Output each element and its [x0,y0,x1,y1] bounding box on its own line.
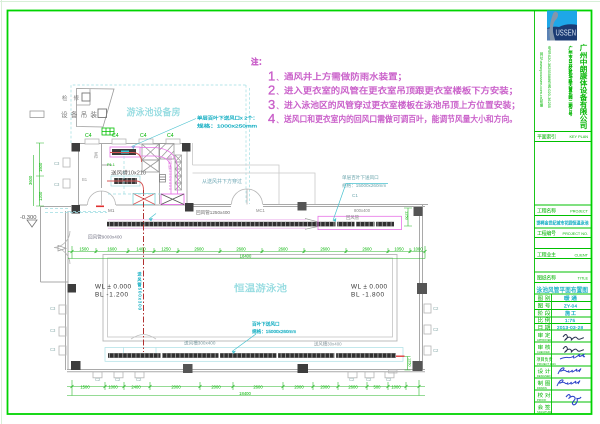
svg-text:注：: 注： [251,57,266,67]
svg-text:进入更衣室的风管在更衣室吊顶跟更衣室楼板下方安装；: 进入更衣室的风管在更衣室吊顶跟更衣室楼板下方安装； [284,86,518,96]
svg-text:C3: C3 [54,182,60,187]
svg-text:2600: 2600 [253,385,263,390]
svg-text:2400: 2400 [131,385,141,390]
svg-text:APPROVED: APPROVED [537,338,552,342]
svg-text:进入泳池区的风管穿过更衣室楼板在泳池吊顶上方位置安装；: 进入泳池区的风管穿过更衣室楼板在泳池吊顶上方位置安装； [284,100,520,110]
svg-text:2000: 2000 [320,385,330,390]
svg-text:广州市白云区机场路天誉花园二期12号: 广州市白云区机场路天誉花园二期12号 [569,44,574,116]
svg-text:PROJECT NO.: PROJECT NO. [563,232,588,236]
svg-text:C4: C4 [167,133,174,139]
svg-text:1400: 1400 [136,247,146,252]
svg-text:PROJECT MAN.: PROJECT MAN. [537,362,557,366]
svg-text:2000: 2000 [211,385,221,390]
svg-text:2600: 2600 [320,247,330,252]
svg-text:PROOF: PROOF [537,398,547,402]
svg-text:M1: M1 [108,208,115,213]
svg-text:广州中朗康体设备有限公司: 广州中朗康体设备有限公司 [579,43,588,129]
svg-text:18400: 18400 [239,391,251,396]
svg-text:、: 、 [277,91,283,97]
svg-text:2600: 2600 [236,247,246,252]
svg-text:规格：1000x250mm: 规格：1000x250mm [197,123,257,130]
svg-text:回风管1250x400: 回风管1250x400 [196,209,230,216]
svg-text:工程名称: 工程名称 [537,208,556,215]
svg-text:USSEN: USSEN [556,29,577,38]
svg-text:1600: 1600 [107,247,117,252]
svg-text:平面索引: 平面索引 [537,134,556,141]
svg-text:图 号: 图 号 [538,304,551,310]
svg-text:18400: 18400 [240,253,252,258]
svg-text:1500: 1500 [38,162,43,172]
svg-text:邯郸金世纪城市花园恒温泳池: 邯郸金世纪城市花园恒温泳池 [537,220,589,227]
svg-text:1000: 1000 [391,385,401,390]
svg-text:1050: 1050 [394,247,404,252]
svg-text:阶 段: 阶 段 [538,310,551,317]
svg-text:C1: C1 [352,193,358,198]
svg-text:、: 、 [277,105,283,111]
svg-text:800x400: 800x400 [354,208,371,213]
svg-text:回风管250x400: 回风管250x400 [168,156,173,191]
svg-text:1: 1 [268,69,275,84]
svg-text:BL -1.800: BL -1.800 [351,292,384,299]
svg-text:施工: 施工 [565,310,576,317]
svg-text:电话:020-36255588传真:020-36255: 电话:020-36255588传真:020-36255 [547,45,551,109]
svg-text:工程编号: 工程编号 [537,230,556,237]
svg-text:单层百叶下送风口x 2个：: 单层百叶下送风口x 2个： [197,115,258,122]
svg-text:2013-03-28: 2013-03-28 [557,325,583,330]
svg-text:游泳池设备房: 游泳池设备房 [127,107,181,118]
svg-text:2: 2 [268,83,275,98]
svg-text:送风槽30x400: 送风槽30x400 [314,340,342,347]
svg-text:C3: C3 [50,347,56,352]
svg-text:DRAWN: DRAWN [537,386,547,390]
svg-text:送风槽10x210: 送风槽10x210 [111,170,146,177]
svg-text:C3: C3 [50,306,56,311]
svg-text:C2: C2 [366,377,372,382]
svg-text:WL ± 0.000: WL ± 0.000 [351,284,387,291]
svg-text:C2: C2 [95,377,101,382]
svg-text:CLIENT: CLIENT [574,254,588,258]
svg-text:3: 3 [268,97,275,112]
svg-text:C2: C2 [115,377,121,382]
svg-text:暖 通: 暖 通 [564,295,577,302]
svg-text:规格：15000x260mm: 规格：15000x260mm [252,328,296,335]
svg-text:单层百叶下送风口: 单层百叶下送风口 [342,174,379,181]
svg-text:回风管: 回风管 [346,214,360,221]
svg-text:工程业主: 工程业主 [537,252,556,259]
svg-text:2600: 2600 [362,247,372,252]
svg-text:C4: C4 [85,133,92,139]
svg-text:PROJECT: PROJECT [570,210,588,214]
svg-text:500: 500 [374,385,382,390]
svg-text:C3: C3 [50,328,56,333]
svg-text:2000: 2000 [294,385,304,390]
svg-text:3600: 3600 [28,175,33,185]
svg-text:恒温游泳池: 恒温游泳池 [234,283,288,294]
svg-text:SIGNATURE: SIGNATURE [537,410,552,414]
svg-text:网址:www.poussen.com.cn邮编: 网址:www.poussen.com.cn邮编 [539,52,543,108]
svg-text:C2: C2 [349,377,355,382]
svg-text:图纸名称: 图纸名称 [537,275,556,282]
svg-text:送风管500x300: 送风管500x300 [137,271,143,311]
svg-text:回风管9000x400: 回风管9000x400 [88,234,122,241]
svg-text:送风口和更衣室内的回风口需做可调百叶，能调节风量大小和方向。: 送风口和更衣室内的回风口需做可调百叶，能调节风量大小和方向。 [284,114,517,124]
svg-text:1000: 1000 [413,247,423,252]
svg-text:M2: M2 [94,152,99,159]
svg-text:1500: 1500 [79,247,89,252]
svg-text:C4: C4 [140,133,147,139]
svg-text:从送风井下方穿过: 从送风井下方穿过 [202,178,242,185]
svg-text:C2: C2 [136,377,142,382]
svg-text:2600: 2600 [348,385,358,390]
svg-text:百叶下送风口: 百叶下送风口 [252,321,280,328]
svg-text:ZY-04: ZY-04 [564,304,577,309]
svg-text:1000: 1000 [108,385,118,390]
svg-text:C2: C2 [433,306,439,311]
svg-text:C2: C2 [433,327,439,332]
svg-text:1250: 1250 [405,211,410,221]
svg-text:、: 、 [277,119,283,125]
svg-text:、: 、 [277,77,283,83]
svg-text:1200: 1200 [38,191,43,201]
svg-text:1250: 1250 [408,358,412,366]
svg-text:2000: 2000 [171,385,181,390]
svg-text:2600: 2600 [278,247,288,252]
svg-text:1500: 1500 [80,385,90,390]
svg-text:1:75: 1:75 [565,318,575,323]
svg-text:BL -1.200: BL -1.200 [95,292,128,299]
svg-text:C2: C2 [433,348,439,353]
svg-text:规格：15000x260mm: 规格：15000x260mm [342,182,386,189]
svg-text:C3: C3 [54,161,60,166]
svg-text:4: 4 [268,111,275,126]
svg-text:泳池风管平面布置图: 泳池风管平面布置图 [537,285,589,294]
svg-text:DESIGNED: DESIGNED [537,374,551,378]
svg-text:2600: 2600 [194,247,204,252]
svg-text:日 期: 日 期 [538,325,551,331]
svg-text:图 别: 图 别 [538,295,551,302]
svg-text:KEY PLAN: KEY PLAN [569,135,588,139]
svg-text:送风槽300x400: 送风槽300x400 [184,339,216,346]
svg-text:C4: C4 [112,133,119,139]
svg-text:比 例: 比 例 [538,317,551,324]
svg-text:B1: B1 [82,177,88,182]
svg-text:1250: 1250 [161,247,171,252]
svg-text:TITLE: TITLE [578,277,589,281]
svg-text:通风井上方需做防雨水装置；: 通风井上方需做防雨水装置； [284,71,407,81]
svg-text:WL ± 0.000: WL ± 0.000 [95,284,131,291]
svg-text:P1.1: P1.1 [107,163,115,167]
svg-text:CHECKED: CHECKED [537,350,550,354]
svg-text:MC1: MC1 [256,208,266,213]
svg-text:C2: C2 [386,377,392,382]
